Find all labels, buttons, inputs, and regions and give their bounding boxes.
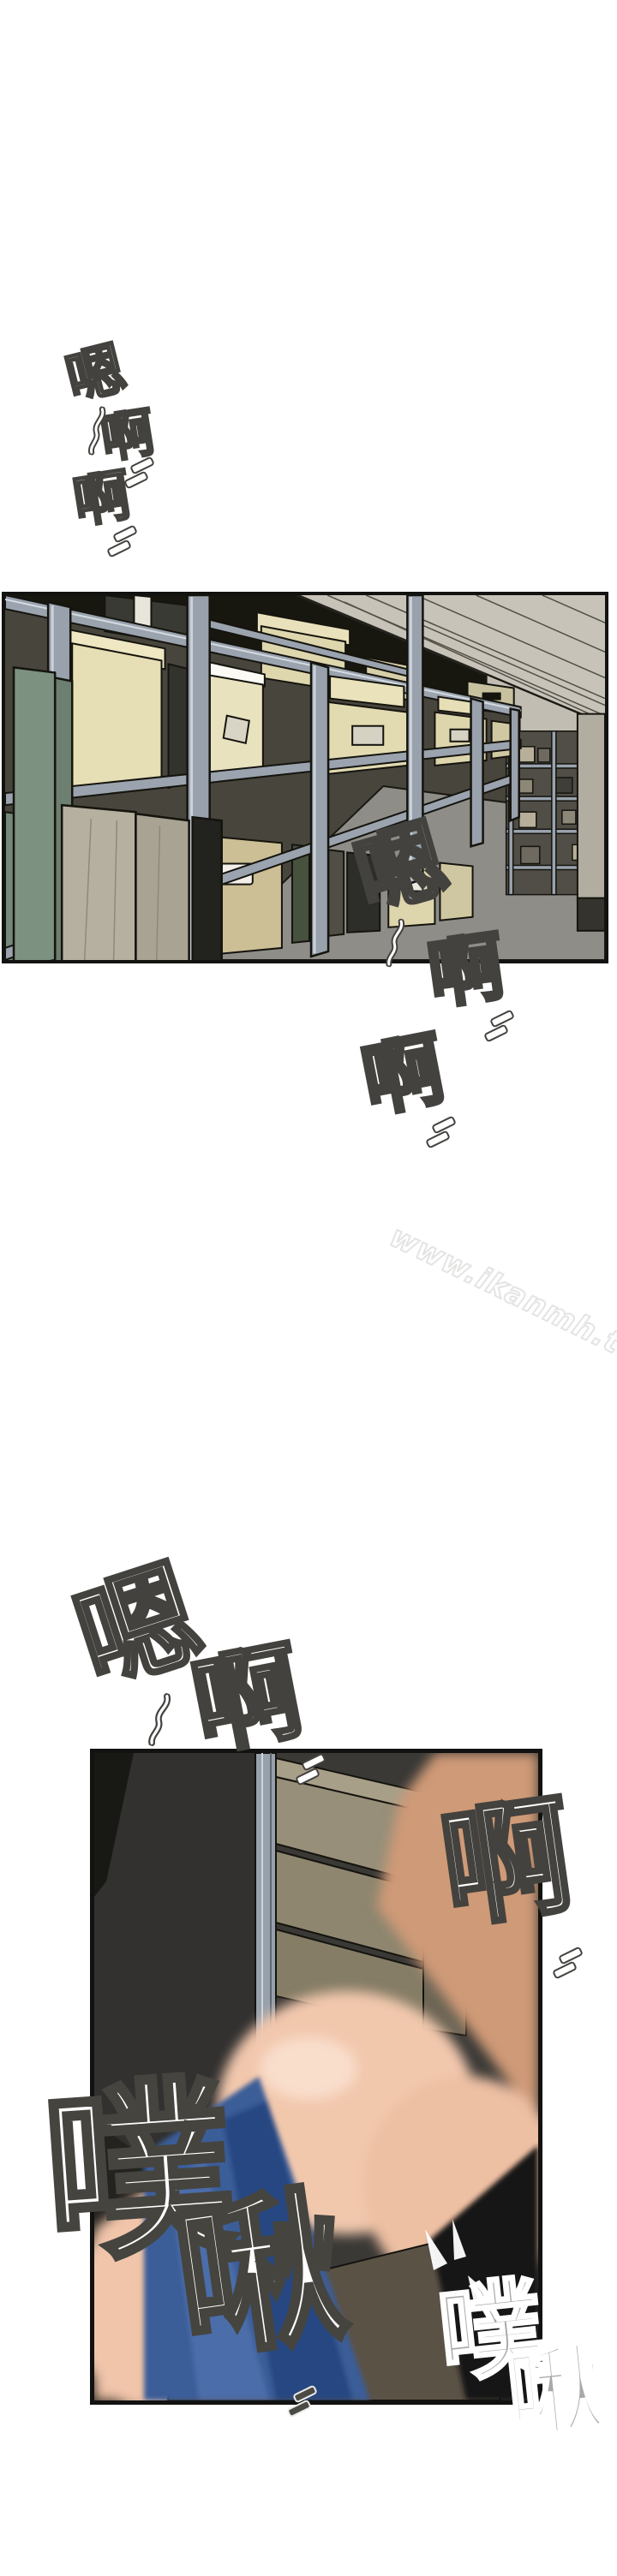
sfx-char: 啾 [502, 2340, 608, 2445]
sfx-trail-dashes [302, 1757, 331, 1792]
sfx-trail-dashes [113, 529, 142, 563]
sfx-trail-dashes [130, 461, 159, 495]
sfx-trail-dashes [432, 1120, 461, 1154]
watermark: www.ikanmh.top [384, 1219, 617, 1380]
sfx-char: 啾 [165, 2181, 355, 2370]
sfx-char: 啊 [423, 928, 508, 1013]
sfx-char: 嗯 [61, 340, 131, 410]
sfx-trail-dashes [293, 2389, 322, 2424]
comic-page: 嗯 啊 啊 [0, 0, 617, 2576]
sfx-char: 啊 [356, 1029, 451, 1124]
sfx-char: 啊 [184, 1637, 311, 1763]
sfx-char: 啊 [69, 467, 135, 532]
wall-pillar [578, 714, 605, 931]
storage-room-panel [2, 592, 608, 963]
storage-room-art [5, 595, 605, 960]
sfx-trail-stroke [143, 1690, 177, 1748]
sfx-trail-dashes [559, 1951, 588, 1985]
sfx-char: 啊 [434, 1790, 581, 1937]
sfx-trail-dashes [490, 1014, 519, 1048]
